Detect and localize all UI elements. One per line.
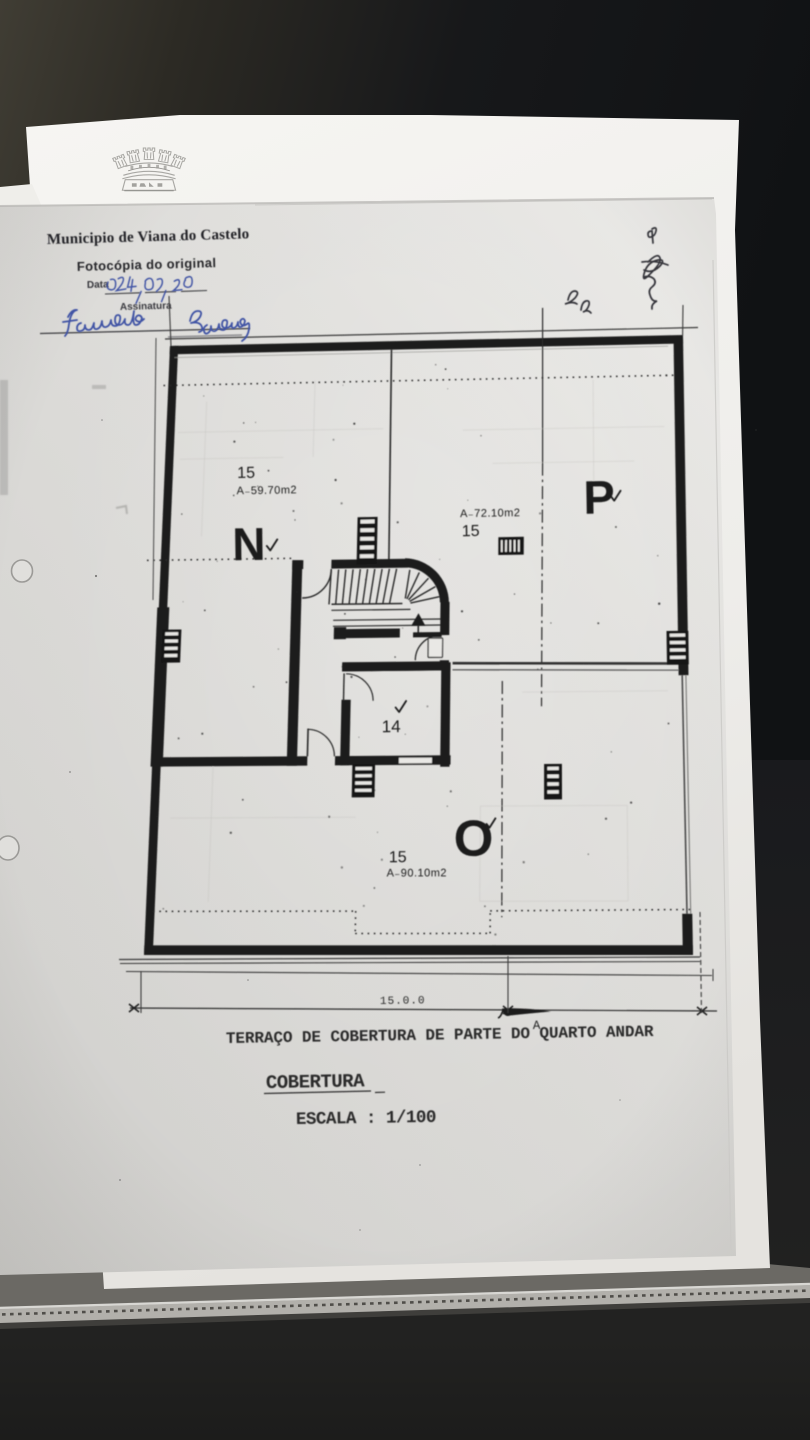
svg-text:A₋72.10m2: A₋72.10m2	[460, 507, 521, 520]
svg-text:O: O	[454, 810, 494, 867]
svg-text:COBERTURA: COBERTURA	[266, 1070, 366, 1094]
svg-text:Data: Data	[87, 279, 109, 291]
svg-text:Assinatura: Assinatura	[120, 301, 172, 313]
svg-text:15: 15	[237, 465, 255, 482]
svg-text:14: 14	[382, 717, 401, 736]
svg-text:N: N	[232, 518, 266, 570]
svg-text:A₋90.10m2: A₋90.10m2	[387, 867, 447, 879]
svg-text:15.0.0: 15.0.0	[380, 995, 426, 1008]
svg-text:ESCALA : 1/100: ESCALA : 1/100	[296, 1108, 436, 1130]
svg-text:A₋59.70m2: A₋59.70m2	[237, 484, 298, 497]
svg-text:15: 15	[462, 523, 480, 540]
svg-text:15: 15	[389, 849, 407, 866]
